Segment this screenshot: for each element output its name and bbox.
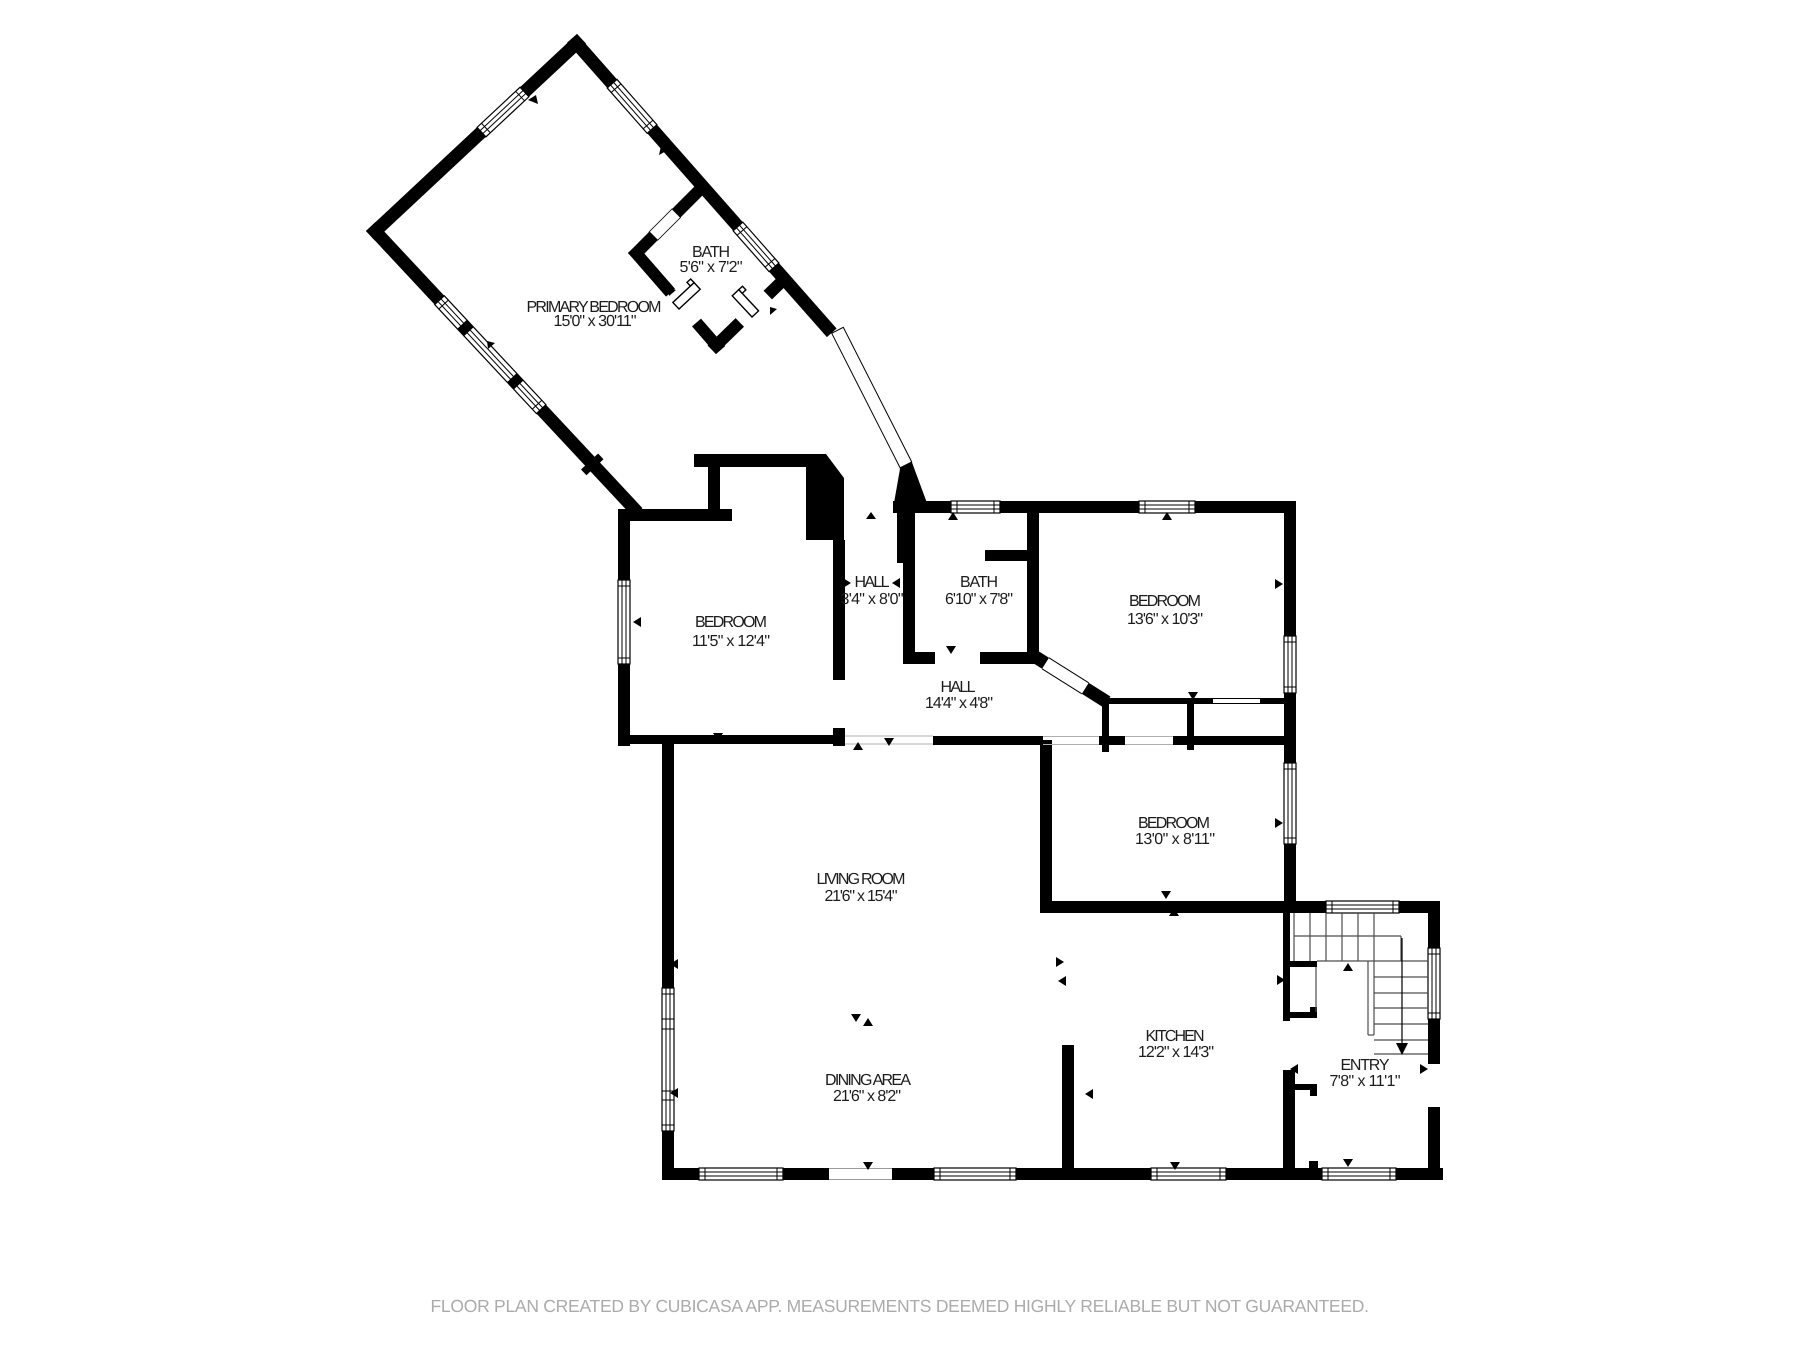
svg-text:13'0" x 8'11": 13'0" x 8'11": [1135, 831, 1215, 848]
svg-text:21'6" x 15'4": 21'6" x 15'4": [825, 888, 898, 905]
svg-text:5'6" x 7'2": 5'6" x 7'2": [680, 259, 743, 276]
svg-text:14'4" x 4'8": 14'4" x 4'8": [925, 695, 993, 712]
svg-text:HALL: HALL: [855, 574, 890, 591]
svg-text:21'6" x 8'2": 21'6" x 8'2": [833, 1088, 901, 1105]
svg-text:HALL: HALL: [941, 679, 976, 696]
svg-text:15'0" x 30'11": 15'0" x 30'11": [554, 313, 637, 330]
svg-text:11'5" x 12'4": 11'5" x 12'4": [692, 633, 770, 650]
svg-text:BEDROOM: BEDROOM: [1129, 593, 1201, 610]
svg-text:6'10" x 7'8": 6'10" x 7'8": [945, 591, 1013, 608]
svg-text:FLOOR PLAN CREATED BY CUBICASA: FLOOR PLAN CREATED BY CUBICASA APP. MEAS…: [431, 1296, 1370, 1316]
svg-text:13'6" x 10'3": 13'6" x 10'3": [1127, 611, 1203, 628]
svg-text:DINING AREA: DINING AREA: [825, 1072, 911, 1089]
svg-text:KITCHEN: KITCHEN: [1146, 1028, 1205, 1045]
svg-text:12'2" x 14'3": 12'2" x 14'3": [1138, 1044, 1214, 1061]
svg-text:3'4" x 8'0": 3'4" x 8'0": [841, 591, 904, 608]
svg-text:ENTRY: ENTRY: [1341, 1057, 1390, 1074]
svg-text:BATH: BATH: [960, 574, 998, 591]
svg-text:BEDROOM: BEDROOM: [695, 614, 767, 631]
svg-text:7'8" x 11'1": 7'8" x 11'1": [1330, 1073, 1401, 1090]
svg-text:BEDROOM: BEDROOM: [1138, 815, 1210, 832]
svg-text:LIVING ROOM: LIVING ROOM: [817, 871, 906, 888]
